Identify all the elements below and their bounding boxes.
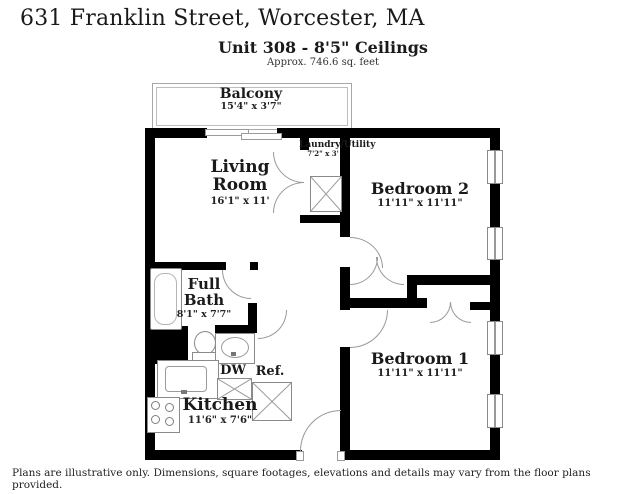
wall-bedroom2-south [417, 275, 490, 285]
door-arc-bed2-closet-right [376, 257, 404, 285]
window-bedroom1-lower [487, 394, 503, 428]
vanity-faucet-icon [231, 352, 236, 356]
window-bedroom2-lower [487, 227, 503, 260]
laundry-machine-icon [310, 176, 342, 212]
wall-divider-middle [340, 267, 350, 310]
unit-title: Unit 308 - 8'5" Ceilings [145, 38, 501, 57]
door-arc-bedroom1 [350, 310, 388, 348]
bedroom1-label: Bedroom 1 11'11" x 11'11" [355, 350, 485, 380]
window-bedroom2-upper [487, 150, 503, 184]
wall-bedroom1-north-right [470, 302, 490, 310]
door-arc-bed1-closet-left [430, 302, 451, 323]
dishwasher-label: DW [216, 363, 250, 378]
disclaimer-text: Plans are illustrative only. Dimensions,… [12, 467, 628, 491]
sliding-door-panel-right [241, 133, 282, 140]
entry-door-jamb-left [296, 451, 304, 461]
stove-burner-icon [151, 415, 160, 424]
wall-top-right [277, 128, 500, 138]
address-title: 631 Franklin Street, Worcester, MA [20, 6, 425, 31]
living-room-label: Living Room 16'1" x 11' [196, 158, 284, 208]
refrigerator-label: Ref. [250, 364, 290, 379]
wall-laundry-south [300, 215, 345, 223]
kitchen-faucet-icon [181, 390, 187, 394]
wall-bottom-left [145, 450, 302, 460]
door-arc-hall [258, 310, 287, 339]
wall-bedroom1-north-left [350, 298, 427, 308]
kitchen-label: Kitchen 11'6" x 7'6" [165, 396, 275, 427]
entry-door-jamb-right [337, 451, 345, 461]
kitchen-sink-basin-icon [165, 366, 207, 392]
unit-square-footage: Approx. 746.6 sq. feet [145, 57, 501, 68]
balcony-label: Balcony 15'4" x 3'7" [171, 87, 331, 112]
door-arc-bed2-closet-left [350, 257, 378, 285]
door-arc-entry [300, 410, 341, 451]
wall-vanity [215, 325, 257, 333]
full-bath-label: Full Bath 8'1" x 7'7" [172, 276, 236, 321]
bedroom2-label: Bedroom 2 11'11" x 11'11" [355, 180, 485, 210]
wall-bath-north-post [250, 262, 258, 270]
wall-chase-block [145, 326, 188, 364]
wall-bottom-right [340, 450, 500, 460]
window-bedroom1-upper [487, 321, 503, 355]
laundry-utility-label: Laundry/Utility 7'2" x 3' [299, 140, 347, 158]
wall-divider-lower [340, 347, 350, 450]
door-arc-bed1-closet-right [450, 302, 471, 323]
floor-plan-page: 631 Franklin Street, Worcester, MA Unit … [0, 0, 640, 494]
stove-burner-icon [151, 401, 160, 410]
